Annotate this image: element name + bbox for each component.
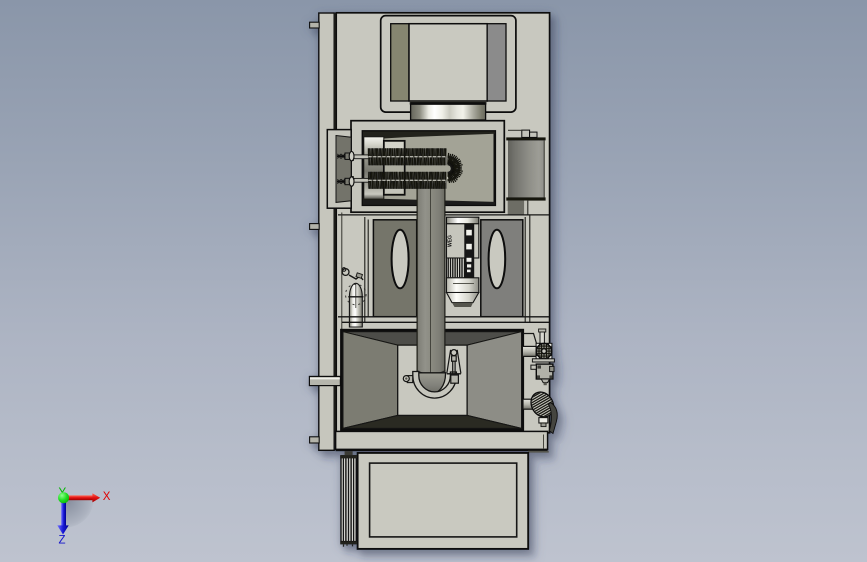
svg-text:Z: Z (59, 535, 66, 547)
svg-text:WEG: WEG (448, 235, 454, 247)
svg-text:X: X (103, 491, 111, 503)
